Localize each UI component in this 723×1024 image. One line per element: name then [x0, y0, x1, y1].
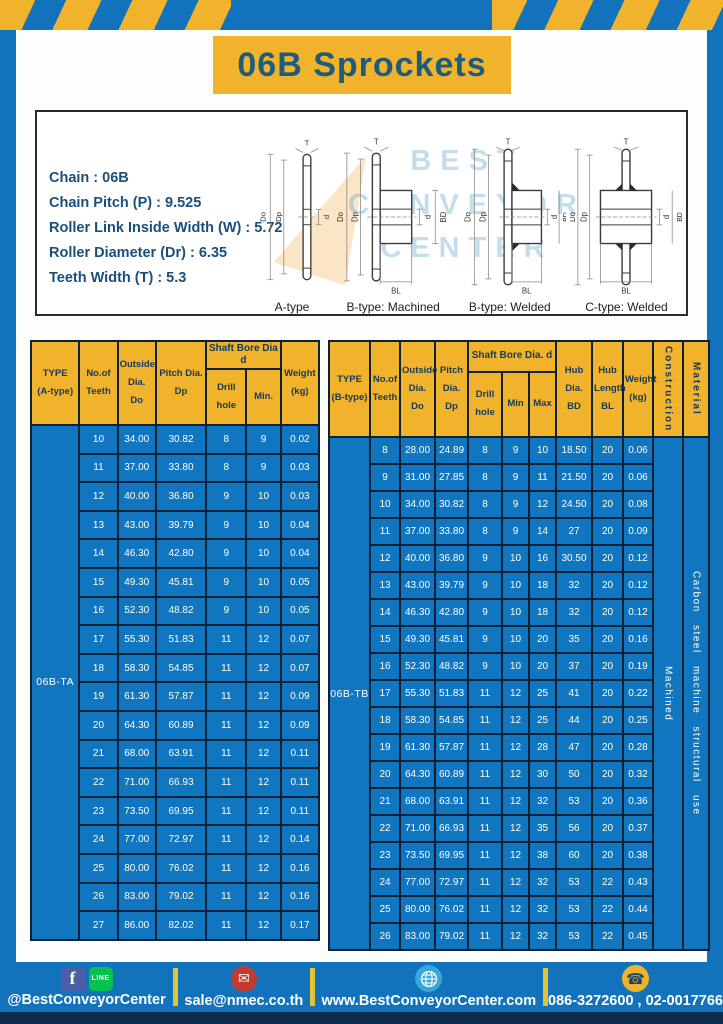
data-cell: 39.79 [156, 511, 206, 540]
data-cell: 27.85 [435, 464, 468, 491]
data-cell: 26 [370, 923, 400, 950]
data-cell: 10 [246, 482, 280, 511]
data-cell: 51.83 [435, 680, 468, 707]
col-outside-dia: Outside Dia. Do [118, 341, 156, 425]
col-max: Max [529, 372, 556, 438]
col-material: Material [683, 341, 709, 437]
data-cell: 0.09 [281, 711, 319, 740]
data-cell: 10 [502, 572, 529, 599]
table-row: 2373.5069.9511123860200.38 [329, 842, 709, 869]
data-cell: 0.09 [623, 518, 653, 545]
catalog-page: 06B Sprockets BEST CONVEYOR CENTER Chain… [0, 0, 723, 1024]
data-cell: 24.89 [435, 437, 468, 464]
data-cell: 28.00 [400, 437, 435, 464]
bottom-navy-strip [0, 1012, 723, 1024]
col-hub-length: Hub Length BL [592, 341, 623, 437]
a-type-drawing-icon: T Do Dp d [251, 135, 333, 299]
svg-text:Dp: Dp [350, 211, 359, 222]
data-cell: 25 [370, 896, 400, 923]
table-row: 1549.3045.819102035200.16 [329, 626, 709, 653]
data-cell: 66.93 [156, 768, 206, 797]
data-cell: 23 [79, 797, 117, 826]
data-cell: 11 [206, 625, 246, 654]
data-cell: 9 [206, 597, 246, 626]
data-cell: 9 [206, 482, 246, 511]
data-cell: 27 [79, 911, 117, 940]
data-cell: 0.22 [623, 680, 653, 707]
data-cell: 8 [468, 518, 502, 545]
col-drill-hole: Drill hole [206, 369, 246, 425]
data-cell: 0.43 [623, 869, 653, 896]
data-cell: 0.16 [623, 626, 653, 653]
type-cell: 06B-TA [31, 425, 79, 940]
data-cell: 0.11 [281, 768, 319, 797]
spec-line-teeth-width: Teeth Width (T) : 5.3 [49, 266, 283, 291]
data-cell: 58.30 [118, 654, 156, 683]
data-cell: 0.38 [623, 842, 653, 869]
col-shaft-bore-group: Shaft Bore Dia. d [468, 341, 556, 372]
data-cell: 49.30 [400, 626, 435, 653]
col-type: TYPE (A-type) [31, 341, 79, 425]
data-cell: 28 [529, 734, 556, 761]
svg-text:T: T [305, 139, 310, 148]
data-cell: 35 [529, 815, 556, 842]
svg-text:Do: Do [570, 211, 577, 222]
data-cell: 10 [246, 568, 280, 597]
data-cell: 39.79 [435, 572, 468, 599]
col-weight: Weight (kg) [623, 341, 653, 437]
data-cell: 20 [592, 518, 623, 545]
data-cell: 16 [370, 653, 400, 680]
data-cell: 66.93 [435, 815, 468, 842]
col-weight: Weight (kg) [281, 341, 319, 425]
data-cell: 31.00 [400, 464, 435, 491]
svg-text:BD: BD [563, 212, 566, 222]
data-cell: 0.25 [623, 707, 653, 734]
data-cell: 64.30 [118, 711, 156, 740]
figure-c-type-welded: T Do Dp d [570, 135, 683, 314]
col-outside-dia: Outside Dia. Do [400, 341, 435, 437]
table-b: TYPE (B-type)No.of TeethOutside Dia. DoP… [328, 340, 710, 951]
data-cell: 11 [529, 464, 556, 491]
data-cell: 73.50 [400, 842, 435, 869]
data-cell: 34.00 [400, 491, 435, 518]
data-cell: 11 [468, 815, 502, 842]
data-cell: 12 [246, 682, 280, 711]
svg-text:Dp: Dp [580, 211, 589, 222]
data-cell: 32 [529, 896, 556, 923]
data-cell: 64.30 [400, 761, 435, 788]
sprocket-figures: T Do Dp d A-type [251, 116, 683, 314]
page-title: 06B Sprockets [213, 36, 511, 94]
email-icon: ✉ [231, 966, 257, 992]
data-cell: 20 [592, 680, 623, 707]
table-row: 2477.0072.9711123253220.43 [329, 869, 709, 896]
col-hub-dia: Hub Dia. BD [556, 341, 592, 437]
data-cell: 82.02 [156, 911, 206, 940]
svg-text:Do: Do [258, 212, 267, 222]
data-cell: 53 [556, 896, 592, 923]
data-cell: 9 [502, 464, 529, 491]
table-row: 1446.3042.809101832200.12 [329, 599, 709, 626]
table-row: 1343.0039.799101832200.12 [329, 572, 709, 599]
data-cell: 72.97 [435, 869, 468, 896]
data-cell: 0.28 [623, 734, 653, 761]
data-cell: 36.80 [435, 545, 468, 572]
data-cell: 18 [529, 599, 556, 626]
data-cell: 9 [370, 464, 400, 491]
data-cell: 11 [206, 740, 246, 769]
data-cell: 12 [502, 869, 529, 896]
data-cell: 37 [556, 653, 592, 680]
data-cell: 12 [502, 923, 529, 950]
table-row: 2064.3060.8911123050200.32 [329, 761, 709, 788]
data-cell: 54.85 [156, 654, 206, 683]
data-cell: 0.05 [281, 568, 319, 597]
data-cell: 14 [370, 599, 400, 626]
data-cell: 26 [79, 883, 117, 912]
col-min: Min [502, 372, 529, 438]
data-cell: 16 [79, 597, 117, 626]
table-row: 1137.0033.80891427200.09 [329, 518, 709, 545]
data-cell: 47 [556, 734, 592, 761]
data-cell: 8 [468, 491, 502, 518]
data-cell: 0.06 [623, 464, 653, 491]
data-cell: 38 [529, 842, 556, 869]
data-cell: 20 [592, 491, 623, 518]
data-cell: 10 [502, 653, 529, 680]
data-cell: 24 [370, 869, 400, 896]
data-cell: 20 [592, 572, 623, 599]
data-cell: 37.00 [400, 518, 435, 545]
data-cell: 9 [206, 568, 246, 597]
data-cell: 11 [370, 518, 400, 545]
data-cell: 18 [529, 572, 556, 599]
data-cell: 12 [246, 825, 280, 854]
data-cell: 55.30 [400, 680, 435, 707]
data-cell: 12 [246, 625, 280, 654]
svg-text:BL: BL [621, 287, 631, 296]
data-cell: 68.00 [118, 740, 156, 769]
data-cell: 9 [468, 572, 502, 599]
spec-list: Chain : 06B Chain Pitch (P) : 9.525 Roll… [49, 166, 283, 291]
data-cell: 0.16 [281, 854, 319, 883]
table-row: 1652.3048.829102037200.19 [329, 653, 709, 680]
data-cell: 9 [502, 437, 529, 464]
col-pitch-dia: Pitch Dia. Dp [156, 341, 206, 425]
data-cell: 0.44 [623, 896, 653, 923]
website-url: www.BestConveyorCenter.com [322, 993, 537, 1009]
data-cell: 60.89 [435, 761, 468, 788]
data-cell: 20 [592, 761, 623, 788]
data-cell: 35 [556, 626, 592, 653]
data-cell: 45.81 [156, 568, 206, 597]
data-cell: 0.03 [281, 454, 319, 483]
data-cell: 36.80 [156, 482, 206, 511]
data-cell: 12 [502, 896, 529, 923]
data-cell: 76.02 [156, 854, 206, 883]
data-cell: 15 [79, 568, 117, 597]
data-cell: 11 [206, 854, 246, 883]
figure-caption: B-type: Welded [469, 300, 551, 314]
data-cell: 12 [502, 707, 529, 734]
data-cell: 0.03 [281, 482, 319, 511]
data-cell: 40.00 [400, 545, 435, 572]
svg-text:Dp: Dp [274, 212, 283, 222]
data-cell: 11 [468, 923, 502, 950]
data-cell: 53 [556, 869, 592, 896]
data-cell: 12 [246, 854, 280, 883]
data-cell: 42.80 [156, 539, 206, 568]
data-cell: 0.08 [623, 491, 653, 518]
data-cell: 12 [502, 734, 529, 761]
data-cell: 42.80 [435, 599, 468, 626]
table-row: 06B-TB828.0024.89891018.50200.06Machined… [329, 437, 709, 464]
data-cell: 54.85 [435, 707, 468, 734]
svg-text:Dp: Dp [479, 211, 488, 222]
data-cell: 12 [246, 654, 280, 683]
table-row: 1240.0036.809101630.50200.12 [329, 545, 709, 572]
data-cell: 0.45 [623, 923, 653, 950]
figure-caption: B-type: Machined [346, 300, 439, 314]
data-cell: 0.11 [281, 797, 319, 826]
data-cell: 12 [246, 711, 280, 740]
data-cell: 48.82 [435, 653, 468, 680]
data-cell: 12 [246, 883, 280, 912]
data-cell: 12 [370, 545, 400, 572]
data-cell: 0.05 [281, 597, 319, 626]
figure-caption: A-type [275, 300, 310, 314]
data-cell: 11 [206, 682, 246, 711]
data-cell: 11 [206, 797, 246, 826]
data-cell: 69.95 [435, 842, 468, 869]
data-cell: 61.30 [400, 734, 435, 761]
data-cell: 52.30 [118, 597, 156, 626]
data-cell: 11 [206, 883, 246, 912]
data-cell: 0.14 [281, 825, 319, 854]
data-cell: 0.06 [623, 437, 653, 464]
footer-email: ✉ sale@nmec.co.th [178, 962, 310, 1012]
data-cell: 71.00 [400, 815, 435, 842]
data-cell: 48.82 [156, 597, 206, 626]
type-cell: 06B-TB [329, 437, 370, 950]
data-cell: 33.80 [156, 454, 206, 483]
data-cell: 20 [592, 437, 623, 464]
data-cell: 11 [206, 654, 246, 683]
construction-cell: Machined [653, 437, 683, 950]
col-teeth: No.of Teeth [370, 341, 400, 437]
data-cell: 20 [592, 545, 623, 572]
table-row: 931.0027.85891121.50200.06 [329, 464, 709, 491]
data-cell: 20 [592, 464, 623, 491]
table-row: 2580.0076.0211123253220.44 [329, 896, 709, 923]
data-cell: 77.00 [118, 825, 156, 854]
svg-text:Do: Do [464, 211, 473, 222]
data-cell: 9 [502, 491, 529, 518]
data-cell: 14 [529, 518, 556, 545]
data-cell: 9 [246, 425, 280, 454]
footer: f LINE @BestConveyorCenter ✉ sale@nmec.c… [0, 962, 723, 1012]
stripe-pattern-left-icon [0, 0, 231, 30]
svg-text:BL: BL [391, 287, 401, 296]
table-a: TYPE (A-type)No.of TeethOutside Dia. DoP… [30, 340, 320, 941]
data-cell: 9 [206, 511, 246, 540]
data-cell: 9 [468, 545, 502, 572]
data-cell: 33.80 [435, 518, 468, 545]
data-cell: 32 [556, 572, 592, 599]
data-cell: 43.00 [400, 572, 435, 599]
data-cell: 61.30 [118, 682, 156, 711]
data-cell: 0.12 [623, 572, 653, 599]
data-cell: 0.19 [623, 653, 653, 680]
data-cell: 32 [556, 599, 592, 626]
data-cell: 20 [592, 734, 623, 761]
data-cell: 12 [246, 740, 280, 769]
data-cell: 40.00 [118, 482, 156, 511]
table-row: 2168.0063.9111123253200.36 [329, 788, 709, 815]
data-cell: 76.02 [435, 896, 468, 923]
col-drill-hole: Drill hole [468, 372, 502, 438]
data-cell: 83.00 [400, 923, 435, 950]
data-cell: 10 [246, 511, 280, 540]
data-cell: 10 [246, 539, 280, 568]
data-cell: 22 [592, 869, 623, 896]
data-cell: 0.17 [281, 911, 319, 940]
data-cell: 30.82 [156, 425, 206, 454]
data-cell: 0.32 [623, 761, 653, 788]
data-cell: 12 [246, 911, 280, 940]
b-type-welded-drawing-icon: T Do Dp d [453, 135, 566, 299]
table-row: 2683.0079.0211123253220.45 [329, 923, 709, 950]
data-cell: 57.87 [435, 734, 468, 761]
line-icon: LINE [89, 967, 113, 991]
col-pitch-dia: Pitch Dia. Dp [435, 341, 468, 437]
data-cell: 10 [502, 599, 529, 626]
data-cell: 11 [468, 761, 502, 788]
data-cell: 11 [79, 454, 117, 483]
data-cell: 11 [468, 788, 502, 815]
data-cell: 9 [206, 539, 246, 568]
svg-text:d: d [423, 215, 432, 219]
social-handle: @BestConveyorCenter [7, 992, 165, 1008]
data-cell: 8 [206, 454, 246, 483]
table-row: 2271.0066.9311123556200.37 [329, 815, 709, 842]
data-cell: 60.89 [156, 711, 206, 740]
data-cell: 25 [529, 680, 556, 707]
col-teeth: No.of Teeth [79, 341, 117, 425]
data-cell: 20 [529, 653, 556, 680]
data-cell: 21.50 [556, 464, 592, 491]
data-cell: 9 [468, 653, 502, 680]
data-cell: 0.02 [281, 425, 319, 454]
data-cell: 20 [79, 711, 117, 740]
spec-line-roller-width: Roller Link Inside Width (W) : 5.72 [49, 216, 283, 241]
data-cell: 19 [79, 682, 117, 711]
data-cell: 10 [246, 597, 280, 626]
data-cell: 69.95 [156, 797, 206, 826]
spec-line-chain: Chain : 06B [49, 166, 283, 191]
data-cell: 22 [79, 768, 117, 797]
data-cell: 20 [529, 626, 556, 653]
data-cell: 11 [468, 680, 502, 707]
diagram-panel: BEST CONVEYOR CENTER Chain : 06B Chain P… [35, 110, 688, 316]
data-cell: 43.00 [118, 511, 156, 540]
data-cell: 20 [592, 842, 623, 869]
data-cell: 10 [370, 491, 400, 518]
data-cell: 46.30 [118, 539, 156, 568]
col-shaft-bore-group: Shaft Bore Dia d [206, 341, 281, 369]
data-cell: 53 [556, 923, 592, 950]
email-address: sale@nmec.co.th [184, 993, 303, 1009]
svg-text:BD: BD [677, 212, 683, 222]
svg-text:BL: BL [522, 287, 532, 296]
data-cell: 0.04 [281, 511, 319, 540]
data-cell: 8 [468, 437, 502, 464]
data-cell: 20 [592, 788, 623, 815]
data-cell: 12 [502, 815, 529, 842]
figure-a-type: T Do Dp d A-type [251, 135, 333, 314]
data-cell: 10 [529, 437, 556, 464]
data-cell: 12 [502, 842, 529, 869]
data-cell: 55.30 [118, 625, 156, 654]
data-cell: 11 [206, 768, 246, 797]
data-cell: 11 [206, 911, 246, 940]
data-cell: 77.00 [400, 869, 435, 896]
data-cell: 19 [370, 734, 400, 761]
phone-numbers: 086-3272600 , 02-0017766 [548, 993, 723, 1009]
data-cell: 21 [370, 788, 400, 815]
data-cell: 0.12 [623, 599, 653, 626]
b-type-machined-drawing-icon: T Do Dp d [337, 135, 450, 299]
col-construction: Construction [653, 341, 683, 437]
data-cell: 22 [592, 896, 623, 923]
data-cell: 0.04 [281, 539, 319, 568]
data-cell: 30.50 [556, 545, 592, 572]
svg-text:T: T [506, 137, 511, 146]
c-type-welded-drawing-icon: T Do Dp d [570, 135, 683, 299]
svg-text:T: T [624, 137, 629, 146]
data-cell: 68.00 [400, 788, 435, 815]
footer-phone: ☎ 086-3272600 , 02-0017766 [548, 962, 723, 1012]
data-cell: 10 [502, 545, 529, 572]
data-cell: 13 [370, 572, 400, 599]
data-cell: 15 [370, 626, 400, 653]
data-cell: 51.83 [156, 625, 206, 654]
data-cell: 11 [468, 734, 502, 761]
data-cell: 11 [468, 707, 502, 734]
svg-text:d: d [550, 215, 559, 219]
spec-line-pitch: Chain Pitch (P) : 9.525 [49, 191, 283, 216]
data-cell: 24.50 [556, 491, 592, 518]
data-cell: 0.36 [623, 788, 653, 815]
data-cell: 11 [206, 711, 246, 740]
data-cell: 9 [468, 599, 502, 626]
data-cell: 52.30 [400, 653, 435, 680]
data-cell: 13 [79, 511, 117, 540]
svg-text:T: T [374, 137, 379, 146]
data-cell: 22 [592, 923, 623, 950]
data-cell: 18 [79, 654, 117, 683]
data-cell: 60 [556, 842, 592, 869]
data-cell: 63.91 [156, 740, 206, 769]
data-cell: 37.00 [118, 454, 156, 483]
data-cell: 32 [529, 923, 556, 950]
table-row: 06B-TA1034.0030.82890.02 [31, 425, 319, 454]
data-cell: 32 [529, 788, 556, 815]
data-cell: 8 [370, 437, 400, 464]
svg-text:d: d [322, 215, 331, 219]
data-cell: 25 [79, 854, 117, 883]
